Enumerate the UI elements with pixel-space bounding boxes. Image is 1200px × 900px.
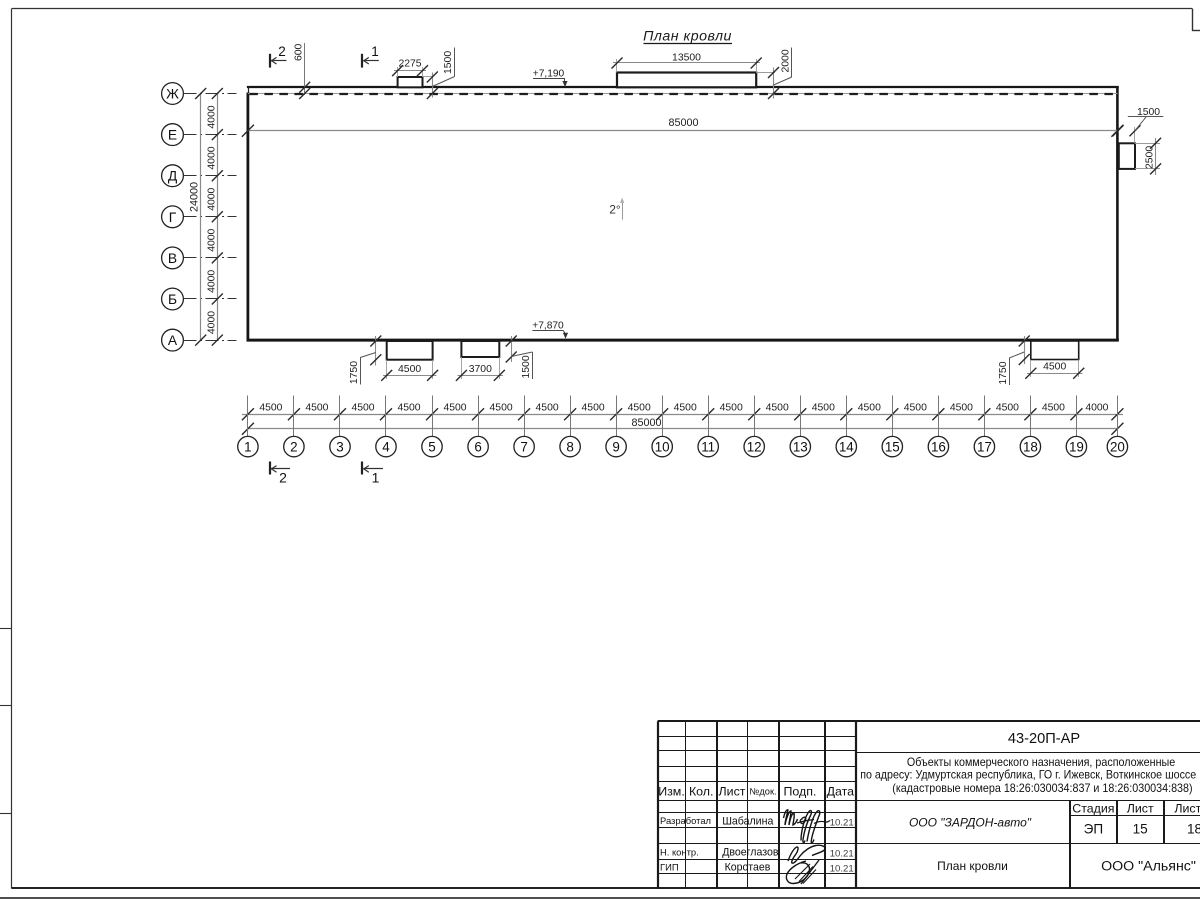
svg-text:А: А [168, 333, 178, 348]
svg-text:4500: 4500 [1043, 362, 1066, 373]
svg-text:12: 12 [747, 439, 762, 454]
svg-text:ГИП: ГИП [660, 861, 679, 872]
svg-text:8: 8 [566, 439, 573, 454]
svg-text:Коротаев: Коротаев [725, 862, 771, 874]
svg-text:1: 1 [371, 44, 379, 59]
svg-text:4500: 4500 [858, 403, 881, 414]
svg-text:Г: Г [169, 210, 177, 225]
svg-text:по адресу: Удмуртская республи: по адресу: Удмуртская республика, ГО г. … [860, 768, 1196, 782]
svg-text:План кровли: План кровли [643, 29, 732, 45]
svg-text:24000: 24000 [188, 182, 200, 212]
svg-text:Стадия: Стадия [1072, 801, 1114, 815]
svg-text:Ж: Ж [166, 87, 179, 102]
svg-text:20: 20 [1110, 439, 1125, 454]
svg-text:+7,870: +7,870 [532, 320, 564, 331]
svg-text:2500: 2500 [1144, 146, 1155, 169]
svg-text:Изм.: Изм. [658, 784, 685, 798]
svg-text:Н. контр.: Н. контр. [660, 846, 699, 857]
svg-text:4500: 4500 [1042, 403, 1065, 414]
svg-text:Лист: Лист [719, 784, 746, 798]
svg-text:3: 3 [336, 439, 343, 454]
svg-text:1750: 1750 [998, 361, 1009, 384]
svg-text:4000: 4000 [207, 187, 218, 210]
svg-text:№док.: №док. [749, 787, 776, 797]
svg-text:17: 17 [977, 439, 992, 454]
svg-text:Разработал: Разработал [660, 815, 711, 826]
svg-text:11: 11 [701, 439, 715, 454]
svg-text:4000: 4000 [207, 311, 218, 334]
svg-text:7: 7 [520, 439, 527, 454]
svg-text:2000: 2000 [780, 49, 791, 72]
svg-text:1: 1 [372, 470, 380, 486]
svg-text:2275: 2275 [398, 59, 421, 70]
svg-text:Лист: Лист [1127, 801, 1154, 815]
svg-text:Кол.: Кол. [689, 784, 714, 798]
svg-text:4500: 4500 [674, 403, 697, 414]
svg-text:85000: 85000 [668, 117, 698, 129]
svg-text:4000: 4000 [207, 228, 218, 251]
svg-text:4000: 4000 [1085, 403, 1108, 414]
svg-text:85000: 85000 [631, 417, 661, 429]
svg-text:4500: 4500 [397, 403, 420, 414]
svg-text:16: 16 [931, 439, 946, 454]
svg-text:1500: 1500 [1137, 107, 1160, 118]
svg-text:4500: 4500 [950, 403, 973, 414]
svg-text:4500: 4500 [812, 403, 835, 414]
svg-text:4500: 4500 [720, 403, 743, 414]
svg-text:1750: 1750 [349, 361, 360, 384]
svg-text:ЭП: ЭП [1084, 822, 1104, 837]
svg-text:15: 15 [1133, 822, 1148, 837]
svg-text:18: 18 [1023, 439, 1038, 454]
svg-text:4000: 4000 [207, 270, 218, 293]
svg-text:Листов: Листов [1174, 801, 1200, 815]
svg-text:Шабалина: Шабалина [722, 816, 773, 828]
svg-text:1: 1 [244, 439, 251, 454]
svg-text:Е: Е [168, 128, 177, 143]
svg-text:4500: 4500 [443, 403, 466, 414]
svg-text:4500: 4500 [351, 403, 374, 414]
svg-text:4500: 4500 [628, 403, 651, 414]
svg-text:Подп.: Подп. [784, 784, 817, 798]
svg-text:5: 5 [428, 439, 435, 454]
svg-text:10.21: 10.21 [830, 818, 854, 829]
svg-text:2: 2 [279, 470, 287, 486]
svg-text:2: 2 [278, 44, 286, 59]
svg-text:План кровли: План кровли [937, 859, 1008, 873]
svg-text:ООО "ЗАРДОН-авто": ООО "ЗАРДОН-авто" [909, 815, 1032, 829]
svg-text:4000: 4000 [207, 105, 218, 128]
svg-text:10: 10 [655, 439, 670, 454]
svg-text:13: 13 [793, 439, 808, 454]
svg-text:1500: 1500 [443, 51, 454, 74]
svg-text:4000: 4000 [207, 146, 218, 169]
svg-text:600: 600 [293, 43, 304, 61]
svg-text:4500: 4500 [766, 403, 789, 414]
svg-text:9: 9 [612, 439, 619, 454]
svg-text:(кадастровые номера 18:26:0300: (кадастровые номера 18:26:030034:837 и 1… [892, 781, 1192, 795]
svg-text:3700: 3700 [469, 364, 492, 375]
svg-text:18: 18 [1187, 822, 1200, 837]
svg-text:4500: 4500 [996, 403, 1019, 414]
svg-text:4500: 4500 [536, 403, 559, 414]
svg-text:Б: Б [168, 292, 177, 307]
svg-text:+7,190: +7,190 [533, 69, 565, 80]
svg-text:В: В [168, 251, 177, 266]
svg-text:15: 15 [885, 439, 900, 454]
svg-text:19: 19 [1069, 439, 1084, 454]
svg-text:2: 2 [290, 439, 297, 454]
svg-text:4500: 4500 [259, 403, 282, 414]
svg-text:ООО "Альянс": ООО "Альянс" [1101, 858, 1196, 874]
svg-text:4500: 4500 [305, 403, 328, 414]
svg-text:Д: Д [168, 169, 178, 184]
svg-text:14: 14 [839, 439, 854, 454]
svg-text:Дата: Дата [827, 784, 855, 798]
svg-text:2°: 2° [609, 202, 621, 216]
svg-text:10.21: 10.21 [830, 864, 854, 875]
svg-text:4: 4 [382, 439, 390, 454]
svg-text:13500: 13500 [672, 53, 701, 64]
svg-text:Двоеглазов: Двоеглазов [722, 847, 779, 859]
svg-text:4500: 4500 [398, 364, 421, 375]
svg-text:43-20П-АР: 43-20П-АР [1008, 731, 1080, 747]
svg-text:4500: 4500 [490, 403, 513, 414]
svg-text:10.21: 10.21 [830, 849, 854, 860]
svg-text:6: 6 [474, 439, 481, 454]
svg-text:1500: 1500 [521, 355, 532, 378]
svg-text:4500: 4500 [582, 403, 605, 414]
svg-text:4500: 4500 [904, 403, 927, 414]
